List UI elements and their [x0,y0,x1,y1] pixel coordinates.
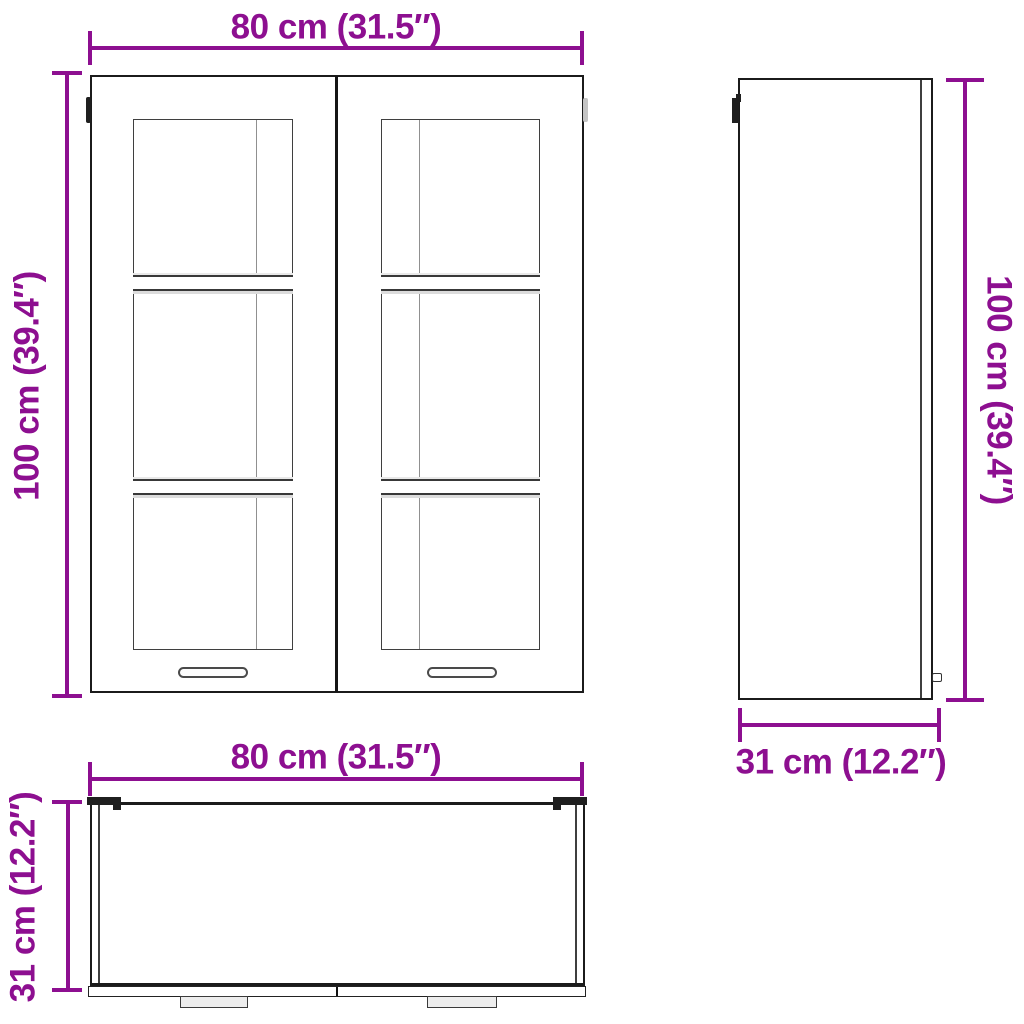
front-right-shelf-lower [381,479,540,495]
front-right-door-mullion [419,120,420,649]
front-right-door-glass [381,119,540,650]
side-cabinet-outline [738,78,933,700]
top-right-hinge [553,797,587,805]
side-wall-bracket-nub [736,94,741,102]
top-depth-label: 31 cm (12.2″) [6,792,41,1003]
top-width-dimension-tick-right [580,762,584,796]
top-left-hinge [87,797,121,805]
top-width-dimension-tick-left [88,762,92,796]
front-door-gap [335,76,338,692]
side-depth-dimension-tick-left [738,708,742,742]
front-width-label: 80 cm (31.5″) [231,10,442,45]
top-door-strip-divider [336,987,338,996]
top-left-side-panel-line [98,805,100,983]
front-right-shelf-upper [381,275,540,291]
top-width-label: 80 cm (31.5″) [231,740,442,775]
top-depth-dimension-line [66,802,70,992]
dimension-diagram: 80 cm (31.5″) 100 cm (39.4″) [0,0,1024,1024]
front-right-hinge-mark [583,98,588,122]
front-height-dimension-line [65,73,69,698]
side-depth-dimension-tick-right [937,708,941,742]
front-width-dimension-tick-right [580,31,584,65]
top-left-handle-tab [180,996,248,1008]
front-left-hinge-mark [86,97,91,123]
front-left-shelf-lower [133,479,293,495]
side-height-dimension-line [963,80,967,702]
top-left-hinge-nub [113,805,121,810]
top-depth-dimension-tick-top [52,800,82,804]
front-right-door-handle [427,667,497,678]
top-depth-dimension-tick-bottom [52,988,82,992]
front-height-label: 100 cm (39.4″) [10,271,45,501]
front-left-door-mullion [256,120,257,649]
side-depth-dimension-line [738,723,941,727]
front-height-dimension-tick-top [52,71,82,75]
front-height-dimension-tick-bottom [52,694,82,698]
front-width-dimension-tick-left [88,31,92,65]
side-height-dimension-tick-top [946,78,984,82]
front-left-door-glass [133,119,293,650]
front-left-shelf-upper [133,275,293,291]
top-width-dimension-line [88,777,584,781]
front-left-door-handle [178,667,248,678]
side-depth-label: 31 cm (12.2″) [736,745,947,780]
side-height-label: 100 cm (39.4″) [982,275,1017,505]
top-right-handle-tab [427,996,497,1008]
side-door-edge-line [920,80,922,698]
top-right-hinge-nub [553,805,561,810]
side-height-dimension-tick-bottom [946,698,984,702]
top-cabinet-outline [90,802,585,986]
side-handle-profile [932,673,942,682]
front-width-dimension-line [88,46,584,50]
top-right-side-panel-line [575,805,577,983]
